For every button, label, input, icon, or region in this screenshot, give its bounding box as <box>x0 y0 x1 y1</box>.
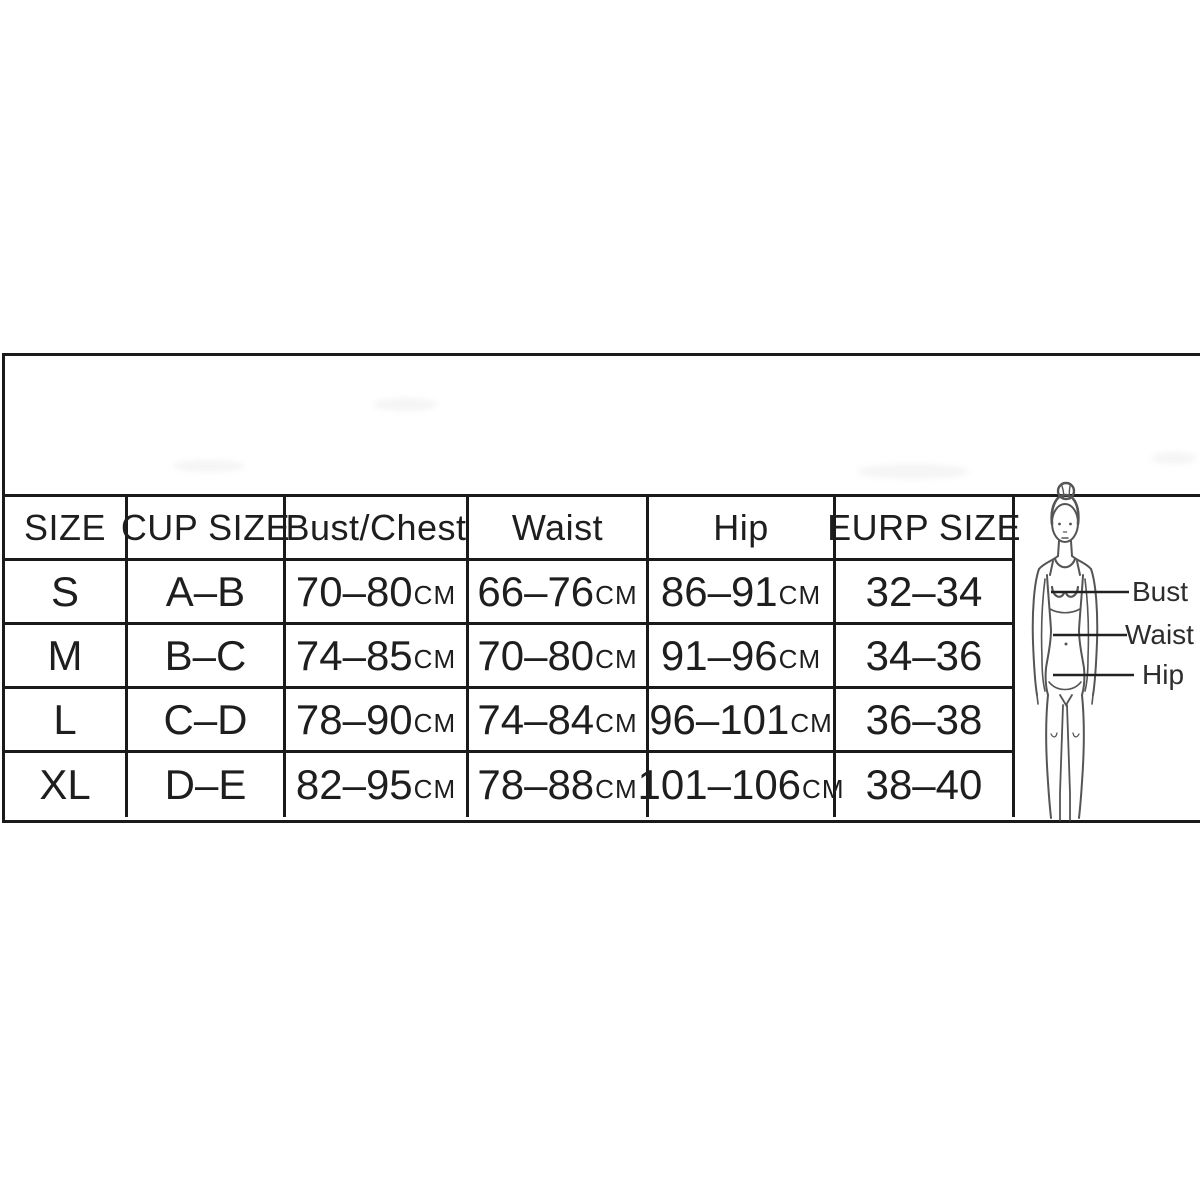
unit-label: CM <box>779 580 821 611</box>
unit-label: CM <box>414 644 456 675</box>
waist-cell-m: 70–80CM <box>469 625 649 689</box>
waist-value: 66–76 <box>477 568 594 616</box>
hip-value: 96–101 <box>649 696 789 744</box>
size-cell-s: S <box>5 561 128 625</box>
unit-label: CM <box>595 708 637 739</box>
woman-figure-illustration <box>1015 482 1200 827</box>
waist-cell-xl: 78–88CM <box>469 753 649 817</box>
header-eurp-size: EURP SIZE <box>836 497 1015 561</box>
bust-cell-l: 78–90CM <box>286 689 469 753</box>
eurp-cell-s: 32–34 <box>836 561 1015 625</box>
header-cup-size: CUP SIZE <box>128 497 286 561</box>
bust-value: 70–80 <box>296 568 413 616</box>
waist-label: Waist <box>1125 620 1194 650</box>
unit-label: CM <box>790 708 832 739</box>
cup-cell-s: A–B <box>128 561 286 625</box>
hip-cell-m: 91–96CM <box>649 625 836 689</box>
size-cell-xl: XL <box>5 753 128 817</box>
hip-cell-s: 86–91CM <box>649 561 836 625</box>
unit-label: CM <box>802 774 844 805</box>
print-smudge <box>857 464 969 479</box>
cup-cell-l: C–D <box>128 689 286 753</box>
eurp-cell-xl: 38–40 <box>836 753 1015 817</box>
header-bust-chest: Bust/Chest <box>286 497 469 561</box>
bust-cell-s: 70–80CM <box>286 561 469 625</box>
figure-outline <box>1033 483 1098 820</box>
waist-cell-s: 66–76CM <box>469 561 649 625</box>
waist-value: 74–84 <box>477 696 594 744</box>
hip-cell-l: 96–101CM <box>649 689 836 753</box>
print-smudge <box>173 460 245 472</box>
bust-cell-m: 74–85CM <box>286 625 469 689</box>
print-smudge <box>373 398 437 411</box>
size-table: SIZE CUP SIZE Bust/Chest Waist Hip EURP … <box>5 497 1200 817</box>
size-chart-image: SIZE CUP SIZE Bust/Chest Waist Hip EURP … <box>0 0 1200 1200</box>
print-smudge <box>1151 452 1197 464</box>
unit-label: CM <box>595 774 637 805</box>
hip-cell-xl: 101–106CM <box>649 753 836 817</box>
header-hip: Hip <box>649 497 836 561</box>
cup-cell-m: B–C <box>128 625 286 689</box>
cup-cell-xl: D–E <box>128 753 286 817</box>
hip-value: 86–91 <box>661 568 778 616</box>
unit-label: CM <box>595 644 637 675</box>
header-size: SIZE <box>5 497 128 561</box>
leader-lines <box>1051 592 1134 675</box>
bust-cell-xl: 82–95CM <box>286 753 469 817</box>
bust-value: 74–85 <box>296 632 413 680</box>
waist-cell-l: 74–84CM <box>469 689 649 753</box>
bust-value: 78–90 <box>296 696 413 744</box>
unit-label: CM <box>779 644 821 675</box>
hip-value: 91–96 <box>661 632 778 680</box>
hip-value: 101–106 <box>638 761 802 809</box>
size-chart-box: SIZE CUP SIZE Bust/Chest Waist Hip EURP … <box>2 353 1200 823</box>
waist-value: 78–88 <box>477 761 594 809</box>
bust-value: 82–95 <box>296 761 413 809</box>
waist-value: 70–80 <box>477 632 594 680</box>
bust-label: Bust <box>1132 577 1188 607</box>
unit-label: CM <box>414 708 456 739</box>
size-cell-l: L <box>5 689 128 753</box>
size-cell-m: M <box>5 625 128 689</box>
unit-label: CM <box>595 580 637 611</box>
eurp-cell-l: 36–38 <box>836 689 1015 753</box>
figure-panel: Bust Waist Hip <box>1015 497 1200 817</box>
eurp-cell-m: 34–36 <box>836 625 1015 689</box>
top-blank-panel <box>5 356 1200 497</box>
hip-label: Hip <box>1142 660 1184 690</box>
header-waist: Waist <box>469 497 649 561</box>
unit-label: CM <box>414 580 456 611</box>
unit-label: CM <box>414 774 456 805</box>
